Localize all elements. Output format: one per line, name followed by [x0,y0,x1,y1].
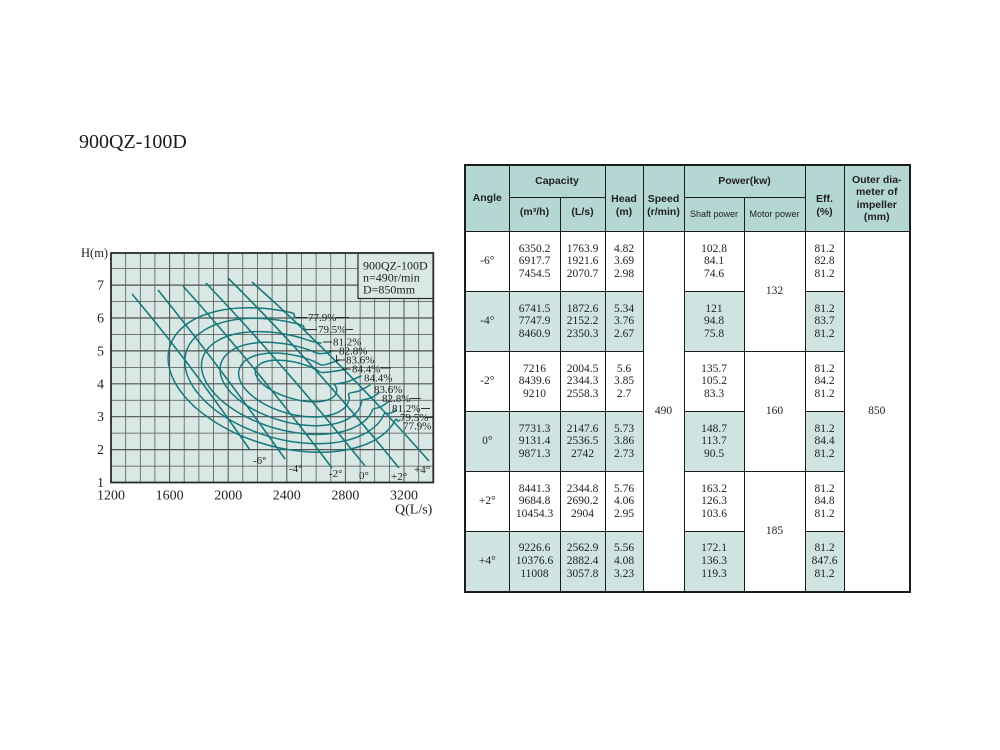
svg-text:2000: 2000 [214,489,242,504]
svg-text:77.9%: 77.9% [403,421,431,433]
svg-text:77.9%: 77.9% [308,312,336,324]
svg-text:D=850mm: D=850mm [363,283,416,297]
svg-text:2400: 2400 [273,489,301,504]
svg-text:+2°: +2° [391,471,407,483]
svg-text:3: 3 [97,410,104,425]
svg-text:2800: 2800 [331,489,359,504]
svg-text:-6°: -6° [253,455,267,467]
svg-text:1600: 1600 [156,489,184,504]
svg-text:H(m): H(m) [81,246,108,260]
svg-text:79.5%: 79.5% [318,324,346,336]
svg-text:1200: 1200 [97,489,125,504]
svg-text:7: 7 [97,279,104,294]
svg-text:-4°: -4° [289,463,303,475]
svg-text:0°: 0° [359,470,369,482]
svg-text:4: 4 [97,377,104,392]
svg-text:84.4%: 84.4% [364,373,392,385]
svg-text:+4°: +4° [414,464,430,476]
svg-text:Q(L/s): Q(L/s) [395,503,433,518]
svg-text:3200: 3200 [390,489,418,504]
svg-text:2: 2 [97,443,104,458]
svg-text:-2°: -2° [329,468,343,480]
svg-text:5: 5 [97,344,104,359]
svg-text:6: 6 [97,312,104,327]
